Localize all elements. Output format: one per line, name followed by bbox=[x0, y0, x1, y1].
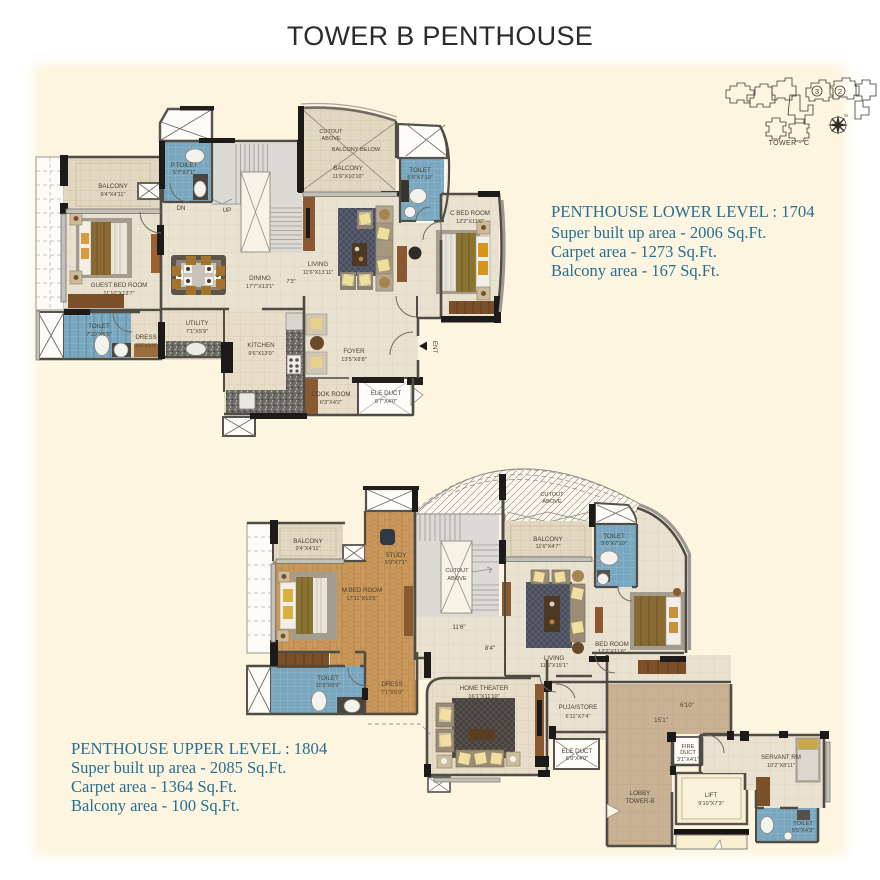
svg-text:17'11"X13'5": 17'11"X13'5" bbox=[346, 596, 377, 602]
svg-text:ELE DUCT: ELE DUCT bbox=[371, 390, 402, 397]
svg-text:ABOVE: ABOVE bbox=[447, 576, 467, 582]
svg-text:SERVANT RM: SERVANT RM bbox=[761, 754, 801, 761]
svg-text:Carpet area - 1273 Sq.Ft.: Carpet area - 1273 Sq.Ft. bbox=[551, 242, 717, 261]
svg-text:BALCONY: BALCONY bbox=[98, 183, 128, 190]
svg-text:TOILET: TOILET bbox=[603, 533, 625, 540]
svg-text:LIFT: LIFT bbox=[705, 792, 718, 799]
svg-text:TOWER B PENTHOUSE: TOWER B PENTHOUSE bbox=[287, 21, 593, 51]
svg-text:C BED ROOM: C BED ROOM bbox=[450, 210, 490, 217]
svg-text:Balcony area - 100 Sq.Ft.: Balcony area - 100 Sq.Ft. bbox=[71, 796, 240, 815]
svg-text:6'10": 6'10" bbox=[680, 702, 694, 709]
svg-text:BED ROOM: BED ROOM bbox=[595, 641, 629, 648]
svg-text:N: N bbox=[844, 113, 847, 118]
svg-text:11'6"X15'1": 11'6"X15'1" bbox=[540, 663, 568, 669]
svg-text:ABOVE: ABOVE bbox=[321, 136, 341, 142]
svg-text:7'1"X5'9": 7'1"X5'9" bbox=[381, 690, 403, 696]
svg-text:Carpet area - 1364 Sq.Ft.: Carpet area - 1364 Sq.Ft. bbox=[71, 777, 237, 796]
svg-text:DN: DN bbox=[177, 205, 186, 212]
svg-text:TOWER - C: TOWER - C bbox=[769, 140, 810, 147]
svg-text:BALCONY BELOW: BALCONY BELOW bbox=[332, 147, 381, 153]
svg-text:TOILET: TOILET bbox=[317, 675, 339, 682]
svg-text:13'5"X8'8": 13'5"X8'8" bbox=[341, 357, 366, 363]
svg-text:3: 3 bbox=[815, 87, 819, 96]
svg-text:6'7"X4'0": 6'7"X4'0" bbox=[375, 399, 397, 405]
svg-text:LOBBY: LOBBY bbox=[630, 790, 651, 797]
svg-text:6'3"X4'2": 6'3"X4'2" bbox=[320, 400, 342, 406]
svg-text:10'2"X8'11": 10'2"X8'11" bbox=[767, 763, 795, 769]
svg-text:STUDY: STUDY bbox=[386, 552, 407, 559]
svg-text:5'7"X7'1": 5'7"X7'1" bbox=[173, 170, 195, 176]
svg-text:Super built up area - 2085 Sq.: Super built up area - 2085 Sq.Ft. bbox=[71, 758, 286, 777]
svg-text:DRESS: DRESS bbox=[381, 681, 402, 688]
svg-text:11'10"X13'7": 11'10"X13'7" bbox=[103, 291, 134, 297]
svg-text:9'4"X4'11": 9'4"X4'11" bbox=[296, 546, 321, 552]
svg-text:Balcony area - 167 Sq.Ft.: Balcony area - 167 Sq.Ft. bbox=[551, 261, 720, 280]
svg-text:CUTOUT: CUTOUT bbox=[319, 129, 343, 135]
svg-text:11'6": 11'6" bbox=[452, 624, 465, 631]
svg-text:ENT: ENT bbox=[431, 341, 438, 354]
svg-text:DUCT: DUCT bbox=[680, 750, 696, 756]
svg-text:2: 2 bbox=[838, 87, 842, 96]
svg-text:P.TOILET: P.TOILET bbox=[171, 162, 198, 169]
svg-text:3'1"X4'1": 3'1"X4'1" bbox=[677, 757, 699, 763]
svg-text:11'6"X4'7": 11'6"X4'7" bbox=[536, 544, 561, 550]
svg-text:ABOVE: ABOVE bbox=[542, 499, 562, 505]
svg-text:PUJA/STORE: PUJA/STORE bbox=[559, 704, 598, 711]
svg-text:HOME THEATER: HOME THEATER bbox=[460, 685, 509, 692]
svg-text:BALCONY: BALCONY bbox=[293, 538, 323, 545]
svg-text:11'6"X10'10": 11'6"X10'10" bbox=[332, 174, 363, 180]
svg-text:UTILITY: UTILITY bbox=[185, 320, 208, 327]
svg-text:9'4"X4'11": 9'4"X4'11" bbox=[101, 192, 126, 198]
svg-text:TOILET: TOILET bbox=[793, 821, 813, 827]
svg-text:DRESS: DRESS bbox=[135, 334, 156, 341]
svg-text:CUTOUT: CUTOUT bbox=[445, 568, 469, 574]
svg-text:7'1"X5'9": 7'1"X5'9" bbox=[186, 329, 208, 335]
svg-text:11'5"X5'9": 11'5"X5'9" bbox=[316, 683, 341, 689]
svg-text:9'10"X7'3": 9'10"X7'3" bbox=[698, 801, 723, 807]
svg-text:3'3"X5'9": 3'3"X5'9" bbox=[135, 343, 157, 349]
svg-text:16'1"X11'10": 16'1"X11'10" bbox=[468, 694, 499, 700]
svg-text:COOK ROOM: COOK ROOM bbox=[311, 391, 350, 398]
svg-text:12'2"X11'6": 12'2"X11'6" bbox=[598, 649, 626, 655]
svg-text:ELE DUCT: ELE DUCT bbox=[562, 748, 593, 755]
svg-text:LIVING: LIVING bbox=[308, 261, 328, 268]
svg-text:17'7"X13'1": 17'7"X13'1" bbox=[246, 284, 275, 290]
svg-text:7'10"X5'5": 7'10"X5'5" bbox=[86, 332, 111, 338]
svg-text:15'1": 15'1" bbox=[654, 717, 668, 724]
svg-text:7'3": 7'3" bbox=[286, 279, 295, 285]
svg-text:5'5"X7'10": 5'5"X7'10" bbox=[407, 175, 432, 181]
svg-text:BALCONY: BALCONY bbox=[333, 165, 363, 172]
svg-text:6'11"X7'4": 6'11"X7'4" bbox=[566, 714, 591, 720]
svg-text:11'6"X13'11": 11'6"X13'11" bbox=[303, 270, 334, 276]
svg-text:TOILET: TOILET bbox=[409, 167, 431, 174]
svg-text:6'9"X4'0": 6'9"X4'0" bbox=[566, 756, 588, 762]
svg-text:BALCONY: BALCONY bbox=[533, 536, 563, 543]
svg-text:9'6"X13'0": 9'6"X13'0" bbox=[248, 351, 273, 357]
svg-text:12'2"X11'6": 12'2"X11'6" bbox=[456, 219, 484, 225]
svg-text:PENTHOUSE LOWER LEVEL : 1704: PENTHOUSE LOWER LEVEL : 1704 bbox=[551, 202, 815, 221]
svg-text:CUTOUT: CUTOUT bbox=[540, 492, 564, 498]
svg-text:UP: UP bbox=[223, 207, 232, 214]
svg-text:5'0"X7'10": 5'0"X7'10" bbox=[601, 541, 626, 547]
svg-text:Super built up area - 2006 Sq.: Super built up area - 2006 Sq.Ft. bbox=[551, 223, 766, 242]
svg-text:M.BED ROOM: M.BED ROOM bbox=[342, 587, 383, 594]
svg-text:FOYER: FOYER bbox=[343, 348, 365, 355]
svg-text:DINING: DINING bbox=[249, 275, 271, 282]
svg-text:5'9"X7'1": 5'9"X7'1" bbox=[385, 560, 407, 566]
svg-text:GUEST BED ROOM: GUEST BED ROOM bbox=[91, 282, 148, 289]
svg-text:TOILET: TOILET bbox=[88, 323, 110, 330]
svg-text:8'4": 8'4" bbox=[485, 645, 495, 652]
svg-text:TOWER-B: TOWER-B bbox=[625, 798, 654, 805]
svg-text:KITCHEN: KITCHEN bbox=[247, 342, 274, 349]
svg-text:5'5"X4'3": 5'5"X4'3" bbox=[792, 828, 814, 834]
svg-text:PENTHOUSE UPPER LEVEL : 1804: PENTHOUSE UPPER LEVEL : 1804 bbox=[71, 739, 328, 758]
svg-text:LIVING: LIVING bbox=[544, 655, 564, 662]
